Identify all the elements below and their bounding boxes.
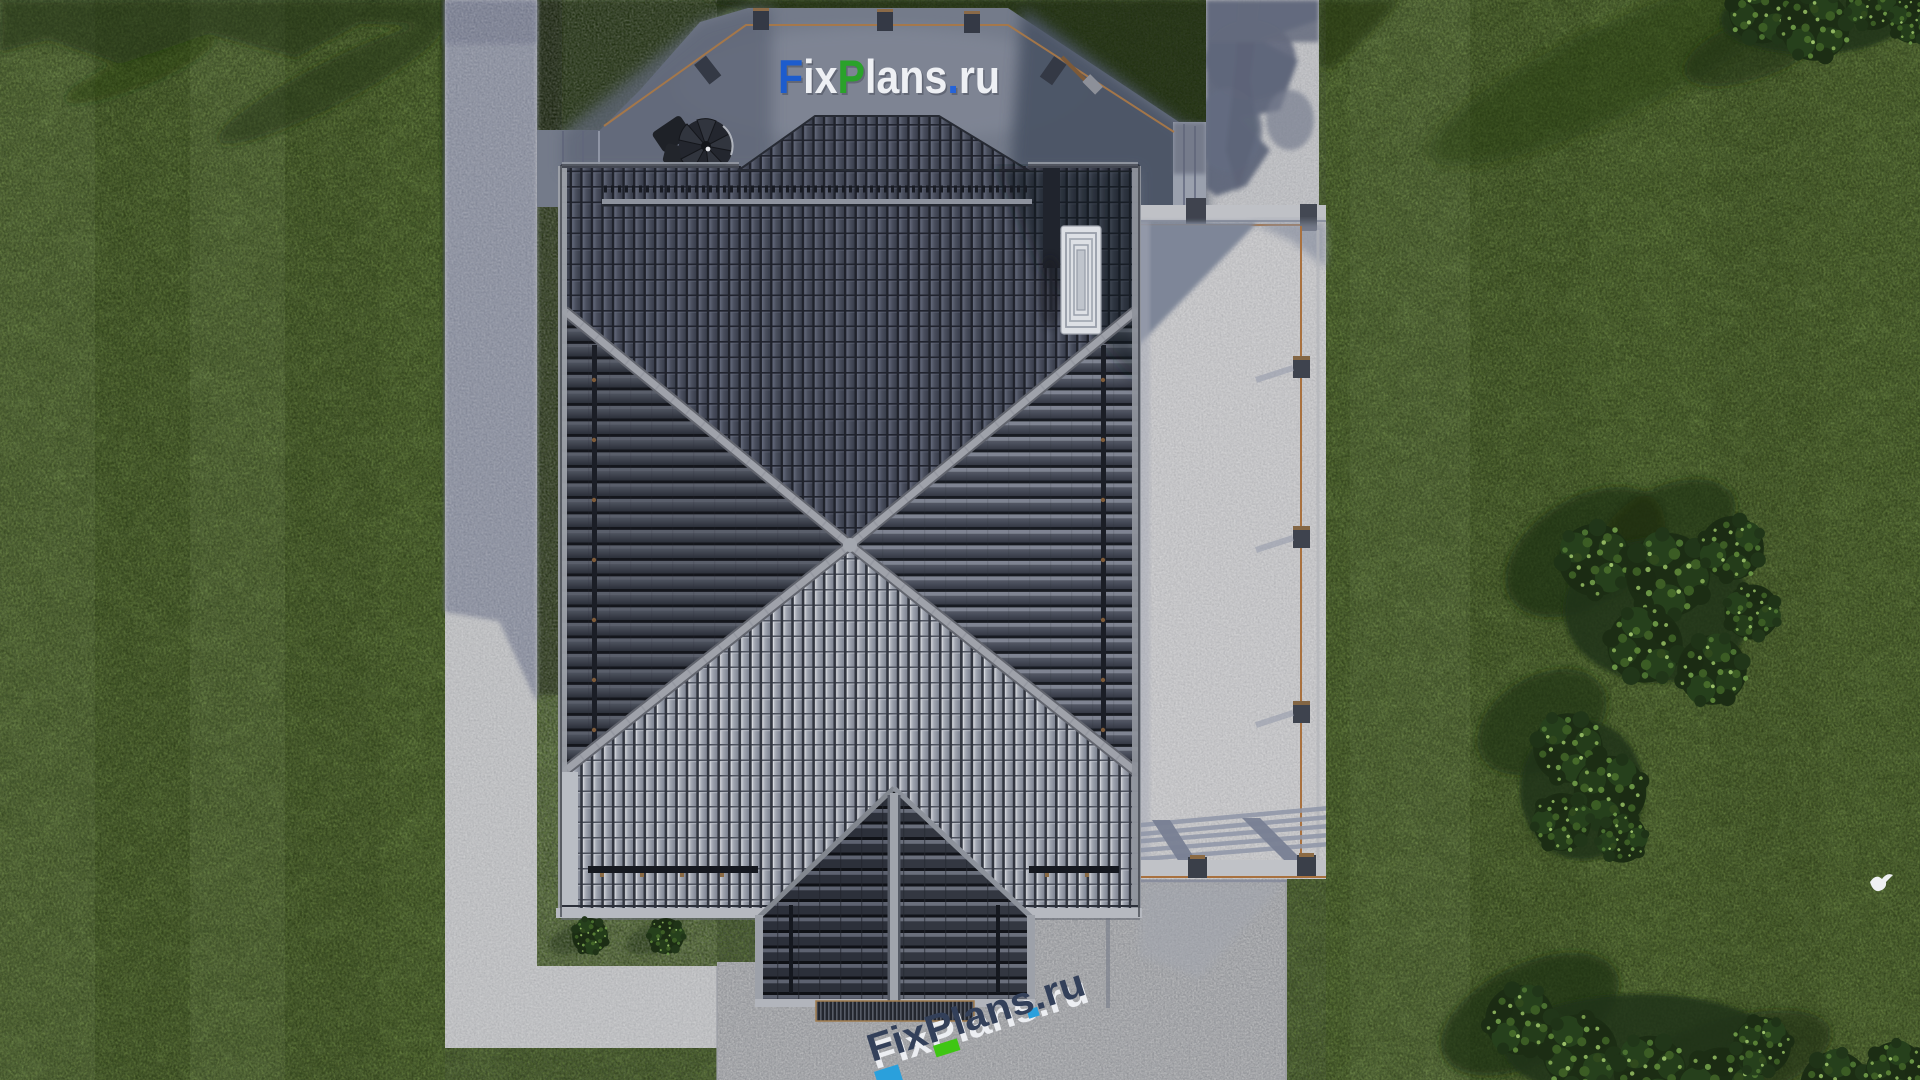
svg-text:FixPlans.ru: FixPlans.ru [778,50,1000,103]
